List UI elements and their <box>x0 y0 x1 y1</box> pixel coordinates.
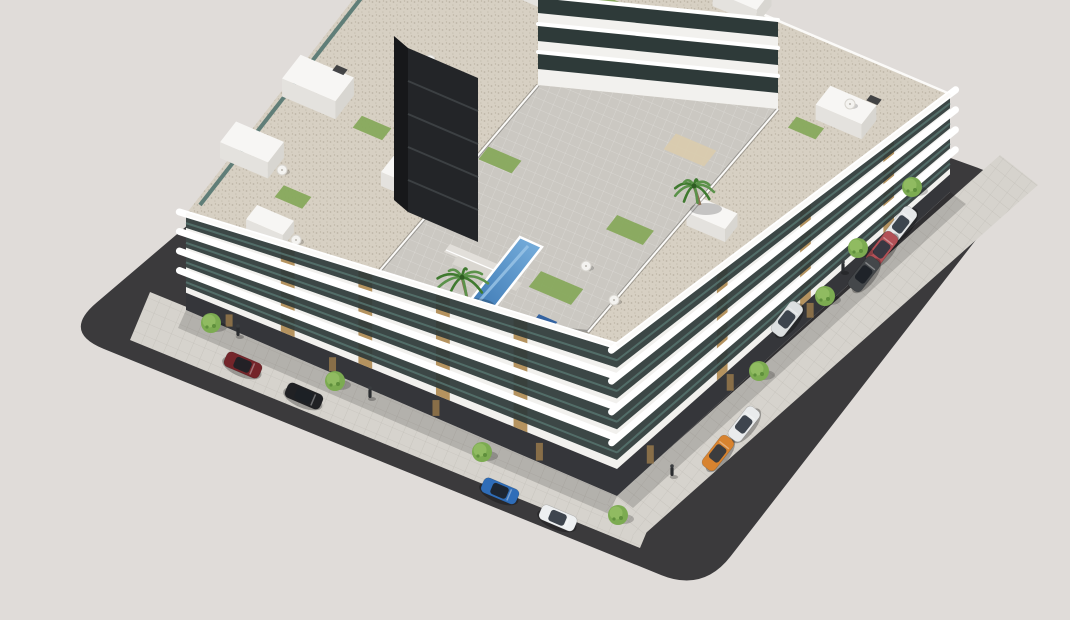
pedestrian-head <box>236 324 240 328</box>
tree-canopy-texture <box>753 373 756 376</box>
pedestrian-figure <box>368 389 371 398</box>
tree-canopy-texture <box>819 298 822 301</box>
pedestrian-head <box>368 386 372 390</box>
tree-canopy-texture <box>329 383 332 386</box>
parasol-pole <box>281 169 283 171</box>
tree-canopy-texture <box>336 382 340 386</box>
architectural-rendering-image <box>0 0 1070 620</box>
tree-canopy-texture <box>205 325 208 328</box>
tree-canopy-texture <box>826 297 830 301</box>
tree-canopy-texture <box>619 516 623 520</box>
tree-canopy-texture <box>483 453 487 457</box>
core-tower-front <box>408 48 478 242</box>
pedestrian-head <box>841 260 845 264</box>
palm-shadow <box>690 203 722 215</box>
tree-canopy-texture <box>476 454 479 457</box>
tree-canopy-texture <box>852 250 855 253</box>
parasol-pole <box>295 239 297 241</box>
core-tower-side <box>394 36 408 212</box>
parasol-pole <box>849 103 851 105</box>
tree-canopy-texture <box>212 324 216 328</box>
pedestrian-head <box>670 464 674 468</box>
pedestrian-figure <box>841 263 844 272</box>
tree-canopy-texture <box>760 372 764 376</box>
render-canvas <box>0 0 1070 620</box>
palm-crown <box>460 275 465 280</box>
tree-canopy-texture <box>913 188 917 192</box>
tree-canopy-texture <box>859 249 863 253</box>
pedestrian-figure <box>236 327 239 336</box>
parasol-pole <box>613 299 615 301</box>
tree-canopy-texture <box>612 517 615 520</box>
palm-crown <box>692 184 697 189</box>
pedestrian-figure <box>670 467 673 476</box>
parasol-pole <box>585 265 587 267</box>
scene-layers <box>0 0 1070 620</box>
tree-canopy-texture <box>906 189 909 192</box>
